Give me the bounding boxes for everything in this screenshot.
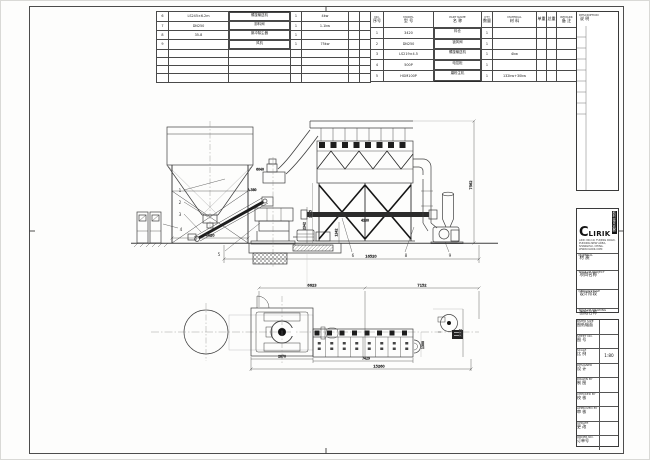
plan-view: 6623 7152 2022 1300 2870 7429 15260	[151, 247, 481, 371]
dim-plan-left: 6623	[307, 284, 316, 288]
collector-footprint	[313, 329, 421, 357]
table-row-empty	[157, 57, 371, 65]
field-material: MATERIAL材 质	[577, 253, 618, 270]
table-row: 2 DN250 锁风阀 1	[371, 39, 577, 50]
table-header-row: NO.序号 MODEL型 号 PART NAME名 称 QTY数量 MATERI…	[371, 12, 577, 28]
table-row: 7 DN250 卸料阀 1 1.1kw	[157, 21, 371, 30]
row-drawn-by: DRAWN BY制 图	[577, 377, 618, 392]
revision-rows	[577, 26, 618, 192]
parts-table-right: NO.序号 MODEL型 号 PART NAME名 称 QTY数量 MATERI…	[370, 11, 577, 82]
drawing-sheet: 4420 2342 3735 1342 7562 16520 4130 A-38…	[0, 0, 650, 460]
feed-hopper	[167, 121, 253, 243]
balloon-9: 9	[449, 253, 452, 258]
row-approved-by: APPROVED BY审 核	[577, 406, 618, 421]
dim-plan-bag: 7429	[362, 357, 370, 361]
mill-footprint	[229, 296, 313, 363]
balloon-3: 3	[179, 212, 182, 217]
ground-line	[131, 243, 498, 264]
dim-elev-height: 7562	[469, 180, 473, 189]
table-row: 3 LS219×4.5 螺旋输送机 1 4kw	[371, 49, 577, 60]
balloon-5: 5	[218, 252, 221, 257]
row-order-no: ORDER NO.订单号	[577, 435, 618, 450]
dim-plan-right: 7152	[417, 284, 426, 288]
parts-table-left: 6 LS245×6.2m 螺旋输送机 1 4kw 7 DN250 卸料阀 1 1…	[156, 11, 371, 83]
signature-block: PAPER SIZE图纸幅面 SHEET NO.图 号 SCALE比 例 1:8…	[576, 319, 619, 447]
discharge-screw-conveyor	[301, 210, 437, 219]
row-paper-size: PAPER SIZE图纸幅面	[577, 320, 618, 334]
dim-hopper-span: 4420	[205, 234, 215, 238]
ref-label-a: A-380	[247, 188, 256, 192]
dim-screw-length: 4130	[361, 219, 369, 223]
table-row-empty	[157, 74, 371, 82]
company-title-block: CLIRIK 科利瑞克机器 ADD: NO.19, FUQING ROAD, P…	[576, 208, 619, 313]
dim-mill-height2: 3735	[308, 210, 312, 218]
company-address: ADD: NO.19, FUQING ROAD, PUDONG NEW AREA…	[577, 238, 618, 253]
table-row-empty	[157, 49, 371, 57]
dim-plan-small: 1300	[421, 341, 425, 349]
table-row-empty	[157, 66, 371, 74]
table-row: 4 500P 电控柜 1	[371, 60, 577, 71]
table-row: 5 HGM100P 磨粉主机 1 132kw+30kw	[371, 70, 577, 81]
outlet-duct-and-fan	[413, 159, 463, 244]
logo-letter-c: C	[579, 228, 589, 238]
field-design-stage: DESIGN STAGE设计阶段	[577, 289, 618, 308]
row-scale: SCALE比 例 1:80	[577, 348, 618, 363]
dim-mill-height1: 2342	[303, 222, 307, 230]
logo-chinese-chip: 科利瑞克机器	[612, 211, 617, 234]
pulse-dust-collector	[310, 121, 415, 241]
table-row: 1 3420 料仓 1	[371, 28, 577, 39]
balloon-6: 6	[352, 253, 355, 258]
row-update: UPDATE更 改	[577, 421, 618, 436]
dim-plan-total: 15260	[373, 365, 385, 369]
table-row: 9 风机 1 75kw	[157, 40, 371, 50]
electric-control-cabinets	[137, 212, 161, 243]
balloon-8: 8	[405, 253, 408, 258]
table-row: 6 LS245×6.2m 螺旋输送机 1 4kw	[157, 12, 371, 22]
row-checked-by: CHECKED BY校 核	[577, 392, 618, 407]
dim-plan-mill: 2870	[278, 355, 286, 359]
dim-elev-total: 16520	[365, 255, 377, 259]
clirik-logo: CLIRIK 科利瑞克机器	[577, 209, 618, 238]
row-sheet-no: SHEET NO.图 号	[577, 334, 618, 349]
scale-value: 1:80	[600, 349, 618, 363]
balloon-1: 1	[179, 188, 182, 193]
field-title-of-project: TITLE OF PROJECT项目名称	[577, 270, 618, 289]
dim-plan-depth: 2022	[459, 329, 463, 337]
balloon-4: 4	[180, 227, 183, 232]
ref-label-b: 6040	[256, 168, 264, 172]
elevation-view: 4420 2342 3735 1342 7562 16520 4130 A-38…	[131, 120, 498, 268]
table-row: 8 35-8 脉冲除尘器 1	[157, 30, 371, 39]
logo-text: LIRIK	[589, 230, 611, 238]
revision-description-block: DESCRIPTION 说 明	[576, 11, 619, 191]
description-label-cn: 说 明	[577, 17, 618, 22]
row-designer: DESIGNER设 计	[577, 363, 618, 378]
balloon-2: 2	[179, 200, 182, 205]
dim-bag-leg: 1342	[335, 229, 339, 237]
plan-dimensions: 6623 7152 2022 1300 2870 7429 15260	[250, 284, 481, 372]
